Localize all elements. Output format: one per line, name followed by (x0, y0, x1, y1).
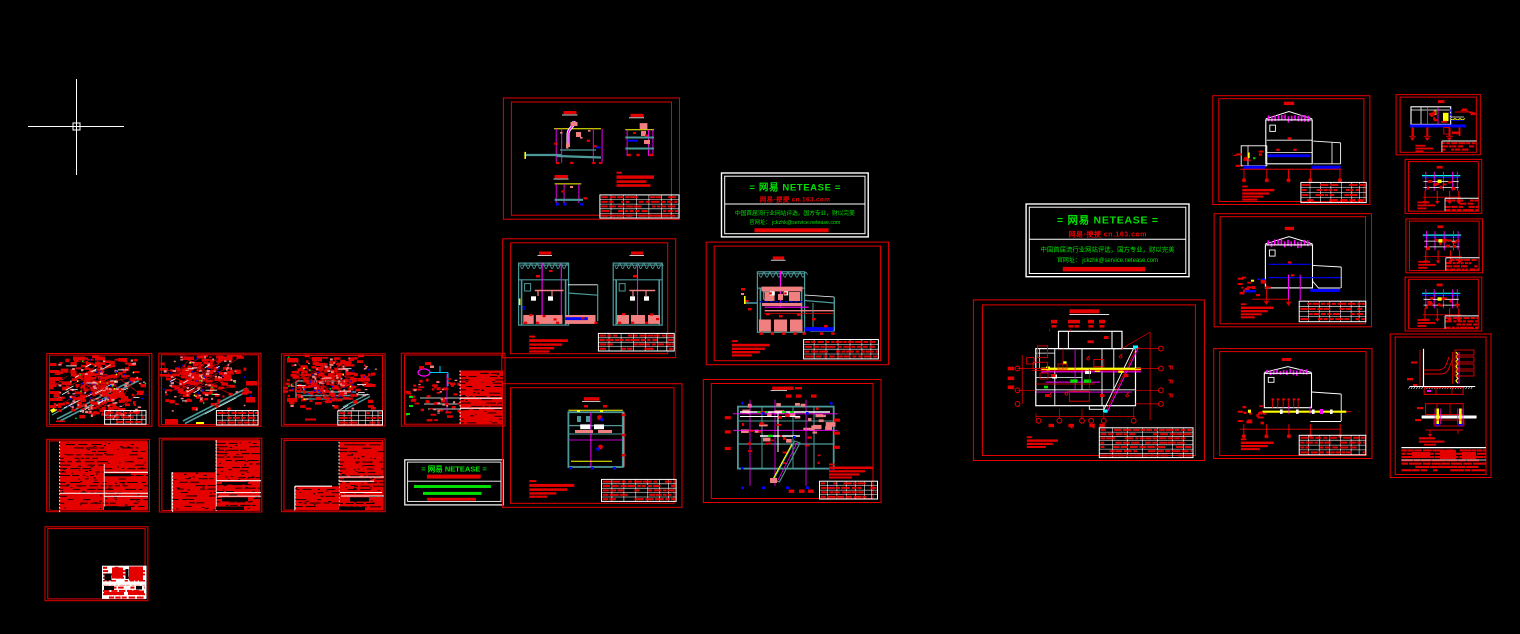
svg-text:官网址： jckzhk@service.netease.co: 官网址： jckzhk@service.netease.com (1057, 256, 1158, 264)
svg-text:= 网易 NETEASE =: = 网易 NETEASE = (1057, 215, 1158, 227)
svg-text:= 网易 NETEASE =: = 网易 NETEASE = (749, 182, 840, 193)
svg-text:= 网易 NETEASE =: = 网易 NETEASE = (421, 465, 487, 474)
svg-text:网易·挭挭 cn.163.com: 网易·挭挭 cn.163.com (760, 194, 830, 203)
svg-text:中国首届流行业网站评选，国方专业，财以完美: 中国首届流行业网站评选，国方专业，财以完美 (1041, 245, 1176, 254)
svg-text:官网址： jckzhk@service.netease.co: 官网址： jckzhk@service.netease.com (749, 218, 841, 226)
svg-text:网易·挭挭 cn.163.com: 网易·挭挭 cn.163.com (1069, 229, 1147, 238)
svg-text:中国首届流行业网站评选，国方专业，财以完美: 中国首届流行业网站评选，国方专业，财以完美 (735, 209, 855, 217)
